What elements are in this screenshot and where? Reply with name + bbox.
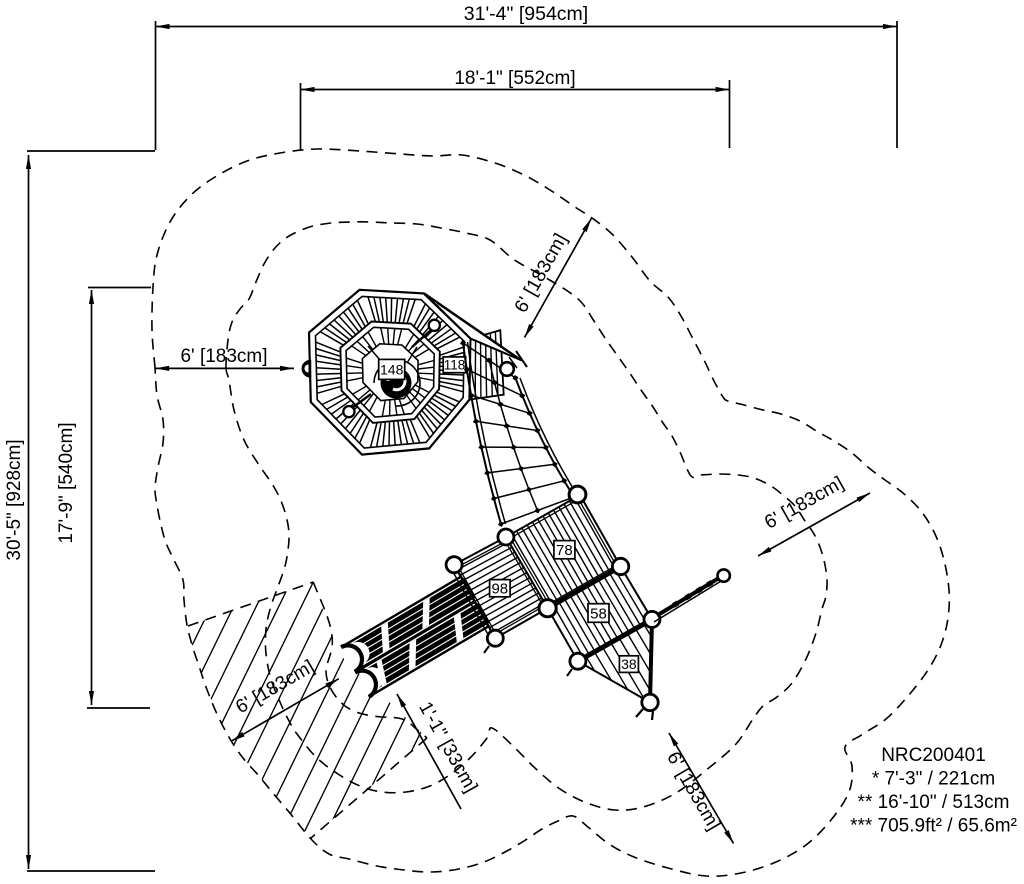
svg-text:** 16'-10" / 513cm: ** 16'-10" / 513cm — [858, 792, 1010, 813]
svg-text:148: 148 — [380, 361, 404, 377]
svg-text:6' [183cm]: 6' [183cm] — [180, 346, 267, 367]
svg-text:58: 58 — [590, 605, 607, 622]
svg-text:98: 98 — [491, 581, 508, 598]
svg-text:118: 118 — [444, 358, 466, 373]
svg-text:NRC200401: NRC200401 — [881, 745, 986, 766]
svg-text:30'-5" [928cm]: 30'-5" [928cm] — [4, 439, 25, 560]
svg-text:17'-9" [540cm]: 17'-9" [540cm] — [56, 422, 77, 543]
svg-text:31'-4" [954cm]: 31'-4" [954cm] — [464, 3, 588, 25]
svg-text:* 7'-3" / 221cm: * 7'-3" / 221cm — [872, 769, 995, 790]
svg-text:38: 38 — [621, 656, 637, 672]
svg-text:*** 705.9ft² / 65.6m²: *** 705.9ft² / 65.6m² — [850, 816, 1017, 837]
svg-text:78: 78 — [556, 542, 573, 559]
svg-text:18'-1" [552cm]: 18'-1" [552cm] — [454, 68, 575, 89]
